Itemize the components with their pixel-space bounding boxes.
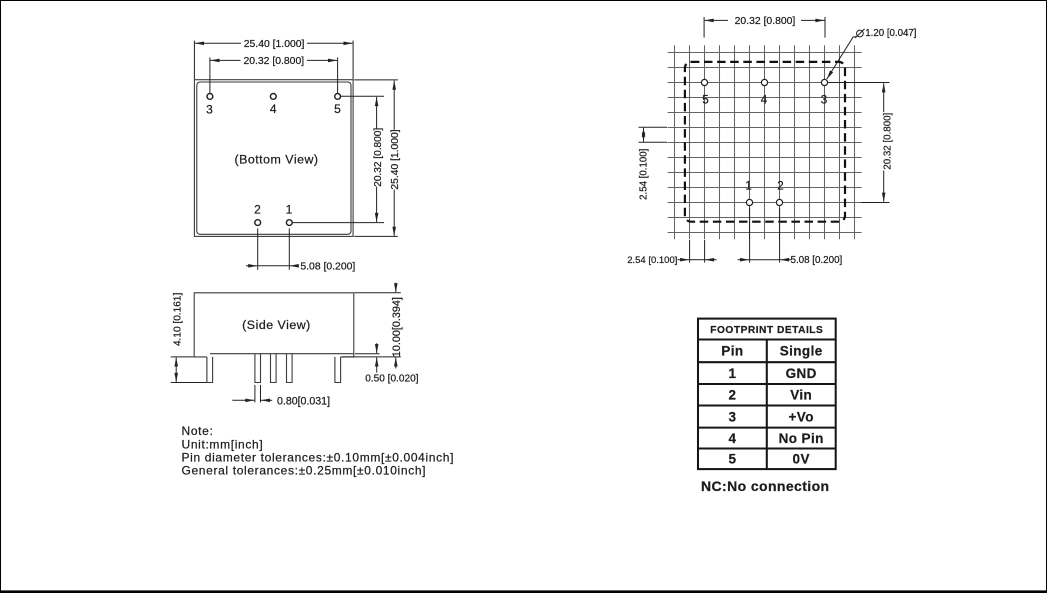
svg-text:2: 2 xyxy=(728,388,736,403)
svg-text:1.20 [0.047]: 1.20 [0.047] xyxy=(865,28,916,39)
svg-text:3: 3 xyxy=(821,93,827,106)
svg-text:2: 2 xyxy=(254,202,261,216)
svg-text:GND: GND xyxy=(786,366,817,381)
svg-text:Vin: Vin xyxy=(790,388,812,403)
svg-text:4.10 [0.161]: 4.10 [0.161] xyxy=(172,293,183,347)
svg-text:Pin: Pin xyxy=(721,344,743,359)
svg-text:25.40 [1.000]: 25.40 [1.000] xyxy=(390,129,401,189)
svg-text:5.08 [0.200]: 5.08 [0.200] xyxy=(300,262,355,273)
svg-text:4: 4 xyxy=(761,93,768,106)
svg-text:5: 5 xyxy=(702,94,708,107)
svg-text:FOOTPRINT DETAILS: FOOTPRINT DETAILS xyxy=(710,325,823,336)
svg-text:4: 4 xyxy=(270,102,277,116)
svg-text:Pin diameter tolerances:±0.10m: Pin diameter tolerances:±0.10mm[±0.004in… xyxy=(182,450,455,464)
svg-text:10.00[0.394]: 10.00[0.394] xyxy=(391,297,403,357)
svg-text:2.54 [0.100]: 2.54 [0.100] xyxy=(627,255,677,266)
svg-text:No Pin: No Pin xyxy=(779,431,824,446)
svg-text:20.32 [0.800]: 20.32 [0.800] xyxy=(373,128,384,187)
svg-text:1: 1 xyxy=(286,202,293,216)
svg-text:Note:: Note: xyxy=(182,424,214,438)
svg-text:1: 1 xyxy=(728,366,736,381)
svg-text:0.50 [0.020]: 0.50 [0.020] xyxy=(365,373,419,384)
svg-text:3: 3 xyxy=(728,409,736,424)
svg-text:Single: Single xyxy=(780,344,823,359)
svg-text:5: 5 xyxy=(728,452,736,467)
svg-text:1: 1 xyxy=(745,179,751,192)
svg-text:General tolerances:±0.25mm[±0.: General tolerances:±0.25mm[±0.010inch] xyxy=(182,464,427,478)
svg-text:(Bottom View): (Bottom View) xyxy=(234,153,318,167)
svg-text:2: 2 xyxy=(777,179,783,192)
svg-text:(Side View): (Side View) xyxy=(242,318,311,332)
svg-text:5.08 [0.200]: 5.08 [0.200] xyxy=(791,255,843,266)
svg-text:5: 5 xyxy=(334,102,341,116)
svg-text:0.80[0.031]: 0.80[0.031] xyxy=(277,395,330,407)
svg-text:20.32 [0.800]: 20.32 [0.800] xyxy=(243,56,304,67)
svg-text:0V: 0V xyxy=(793,452,810,467)
svg-text:25.40 [1.000]: 25.40 [1.000] xyxy=(244,39,305,50)
svg-text:4: 4 xyxy=(728,431,736,446)
svg-text:20.32 [0.800]: 20.32 [0.800] xyxy=(735,16,796,27)
svg-text:2.54 [0.100]: 2.54 [0.100] xyxy=(639,149,650,200)
svg-text:20.32 [0.800]: 20.32 [0.800] xyxy=(882,112,893,169)
svg-text:+Vo: +Vo xyxy=(789,409,814,424)
svg-text:NC:No connection: NC:No connection xyxy=(701,478,830,494)
svg-text:3: 3 xyxy=(206,102,213,116)
svg-text:Unit:mm[inch]: Unit:mm[inch] xyxy=(182,437,264,451)
